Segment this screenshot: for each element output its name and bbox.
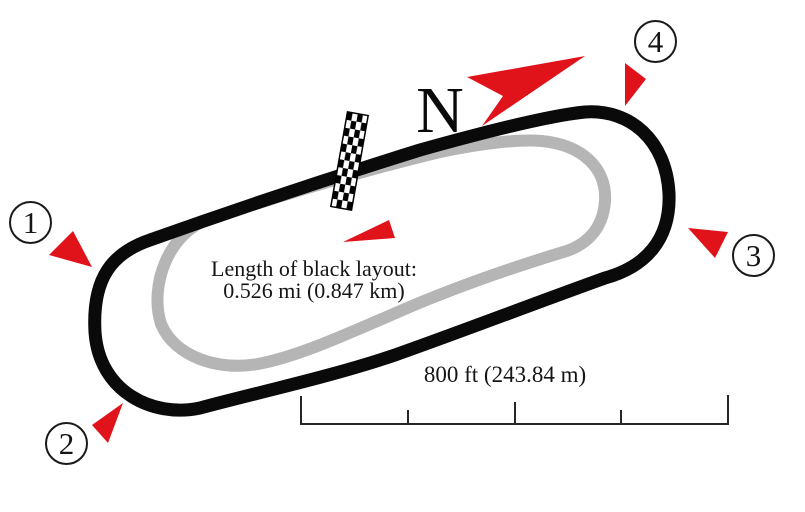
turn-marker-3: 3	[732, 234, 775, 277]
track-length-note-line1: Length of black layout:	[189, 258, 439, 280]
track-map-canvas: 1 2 3 4 N Length of black layout: 0.526 …	[0, 0, 805, 512]
north-label: N	[405, 78, 475, 144]
scale-bar	[300, 395, 729, 425]
track-outline-gray	[157, 140, 605, 365]
direction-arrow-icon	[343, 220, 395, 242]
scale-tick	[620, 410, 622, 423]
turn-3-arrow-icon	[688, 228, 728, 258]
scale-tick	[727, 395, 729, 423]
finish-line-icon	[331, 112, 368, 210]
scale-tick	[300, 396, 302, 423]
turn-1-arrow-icon	[49, 231, 92, 267]
turn-4-arrow-icon	[625, 63, 646, 106]
turn-2-arrow-icon	[92, 403, 123, 443]
turn-marker-2: 2	[45, 422, 88, 465]
track-length-note-line2: 0.526 mi (0.847 km)	[189, 280, 439, 302]
turn-marker-4-label: 4	[648, 26, 664, 57]
turn-marker-2-label: 2	[59, 428, 75, 459]
track-length-note: Length of black layout: 0.526 mi (0.847 …	[189, 258, 439, 302]
scale-tick	[407, 410, 409, 423]
turn-marker-1: 1	[9, 201, 52, 244]
turn-marker-1-label: 1	[23, 207, 39, 238]
scale-tick	[514, 402, 516, 423]
turn-marker-4: 4	[634, 20, 677, 63]
scale-bar-label: 800 ft (243.84 m)	[385, 363, 625, 386]
turn-marker-3-label: 3	[746, 240, 762, 271]
